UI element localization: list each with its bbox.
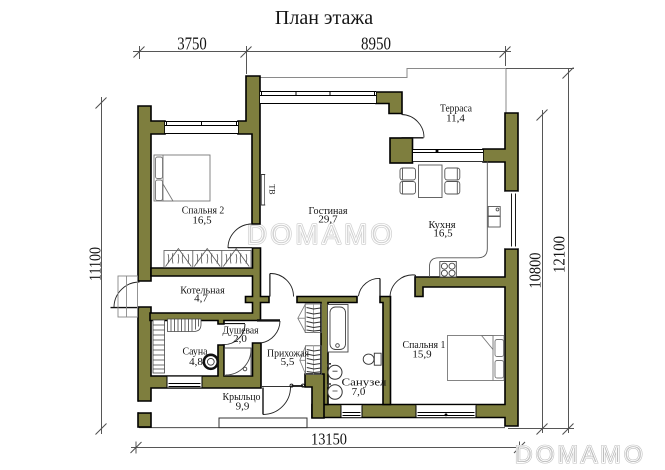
svg-text:9,9: 9,9 — [236, 401, 250, 413]
svg-text:10800: 10800 — [526, 253, 545, 289]
svg-text:13150: 13150 — [311, 430, 347, 449]
svg-text:11,4: 11,4 — [446, 113, 465, 125]
svg-text:8950: 8950 — [361, 34, 391, 54]
svg-text:ТВ: ТВ — [268, 184, 277, 194]
svg-text:15,9: 15,9 — [412, 349, 432, 361]
svg-text:11100: 11100 — [86, 247, 105, 281]
svg-text:16,5: 16,5 — [433, 228, 453, 240]
svg-text:29,7: 29,7 — [318, 214, 338, 226]
svg-text:2,0: 2,0 — [233, 333, 247, 345]
svg-text:4,8: 4,8 — [189, 356, 203, 368]
svg-text:3750: 3750 — [177, 34, 207, 54]
svg-text:4,7: 4,7 — [194, 293, 208, 305]
svg-text:12100: 12100 — [550, 236, 569, 273]
svg-text:DOMAMO: DOMAMO — [515, 442, 646, 469]
svg-text:5,5: 5,5 — [281, 356, 295, 368]
svg-text:План этажа: План этажа — [275, 7, 373, 29]
svg-text:16,5: 16,5 — [192, 215, 212, 227]
svg-text:7,0: 7,0 — [352, 386, 366, 398]
